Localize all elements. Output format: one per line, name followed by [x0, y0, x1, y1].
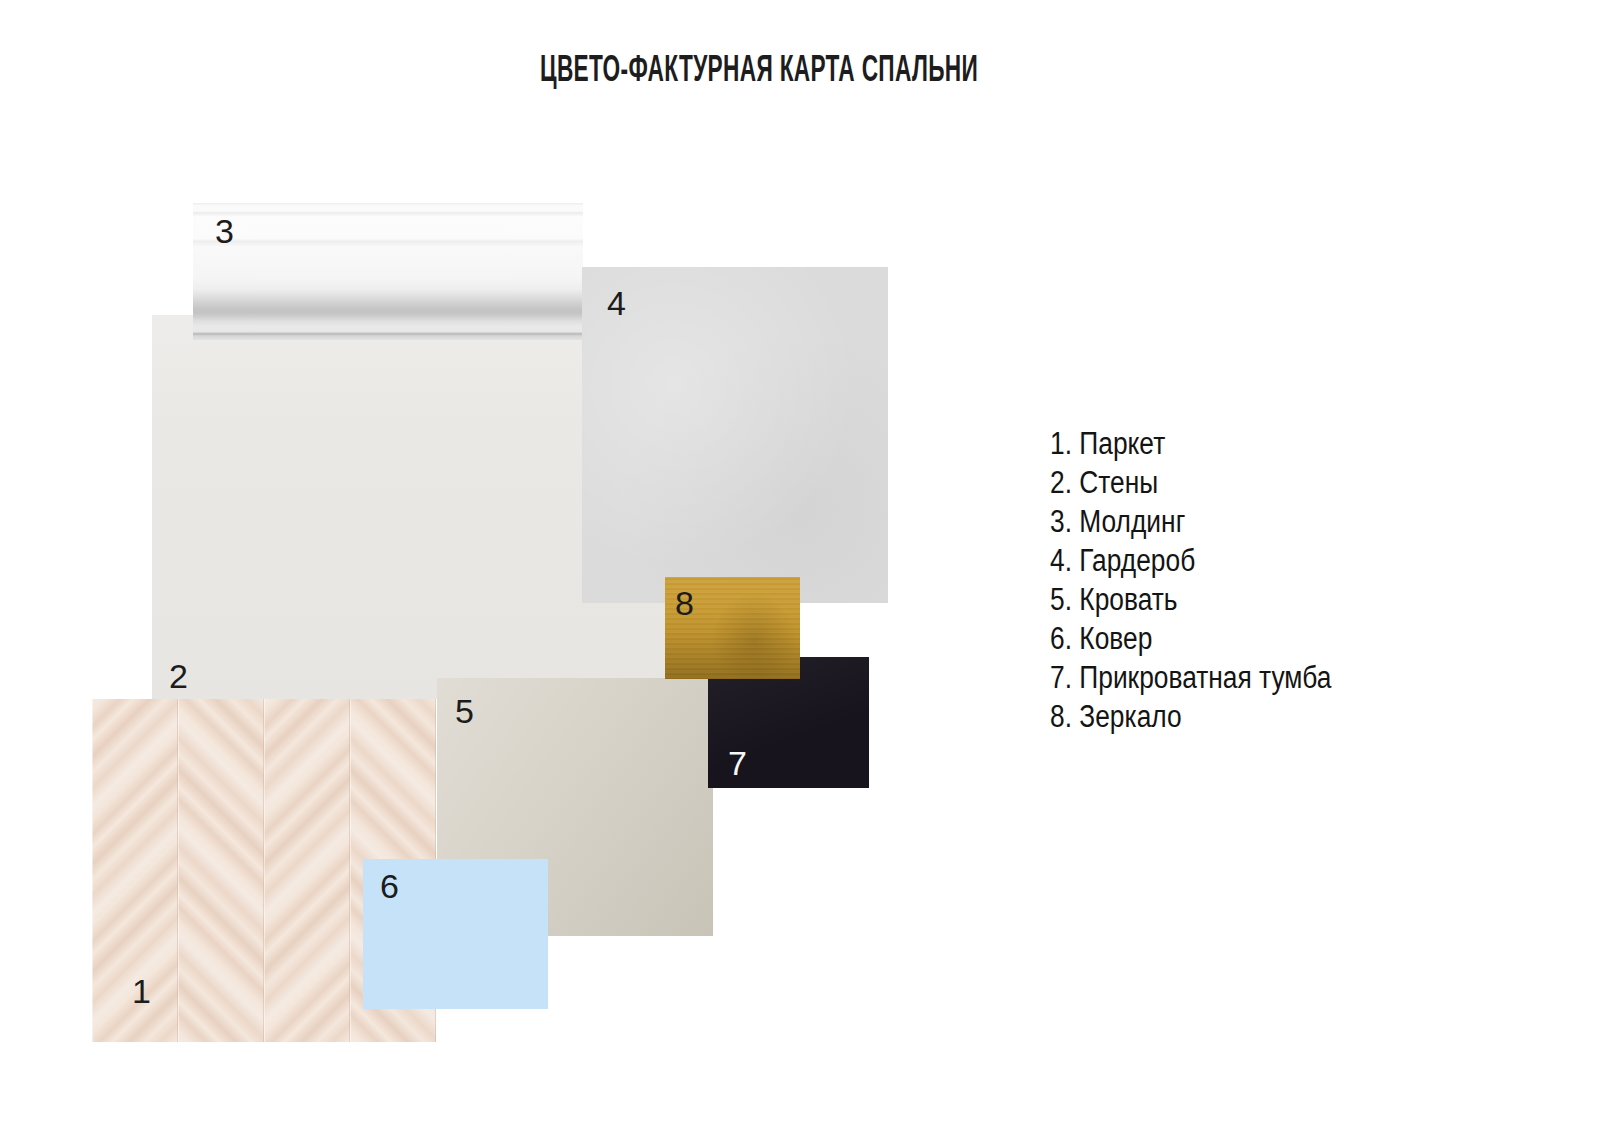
- legend-item-carpet: 6. Ковер: [1050, 619, 1331, 658]
- legend-list: 1. Паркет 2. Стены 3. Молдинг 4. Гардеро…: [1050, 424, 1331, 736]
- parquet-column: [178, 699, 264, 1042]
- swatch-molding: 3: [193, 203, 583, 340]
- swatch-number-carpet: 6: [380, 869, 399, 903]
- color-texture-board: ЦВЕТО-ФАКТУРНАЯ КАРТА СПАЛЬНИ 2 3 4 5 1 …: [0, 0, 1600, 1132]
- swatch-number-parquet: 1: [132, 974, 151, 1008]
- swatch-number-nightstand: 7: [728, 746, 747, 780]
- parquet-column: [264, 699, 350, 1042]
- legend-item-wardrobe: 4. Гардероб: [1050, 541, 1331, 580]
- legend-item-walls: 2. Стены: [1050, 463, 1331, 502]
- swatch-carpet: 6: [363, 859, 548, 1009]
- swatch-number-wardrobe: 4: [607, 286, 626, 320]
- swatch-number-walls: 2: [169, 659, 188, 693]
- legend-item-parquet: 1. Паркет: [1050, 424, 1331, 463]
- swatch-mirror: 8: [665, 577, 800, 679]
- swatch-wardrobe: 4: [582, 267, 888, 603]
- legend-item-bed: 5. Кровать: [1050, 580, 1331, 619]
- swatch-number-molding: 3: [215, 214, 234, 248]
- legend-item-molding: 3. Молдинг: [1050, 502, 1331, 541]
- legend-item-mirror: 8. Зеркало: [1050, 697, 1331, 736]
- page-title: ЦВЕТО-ФАКТУРНАЯ КАРТА СПАЛЬНИ: [540, 48, 978, 90]
- swatch-number-mirror: 8: [675, 586, 694, 620]
- legend-item-nightstand: 7. Прикроватная тумба: [1050, 658, 1331, 697]
- swatch-number-bed: 5: [455, 694, 474, 728]
